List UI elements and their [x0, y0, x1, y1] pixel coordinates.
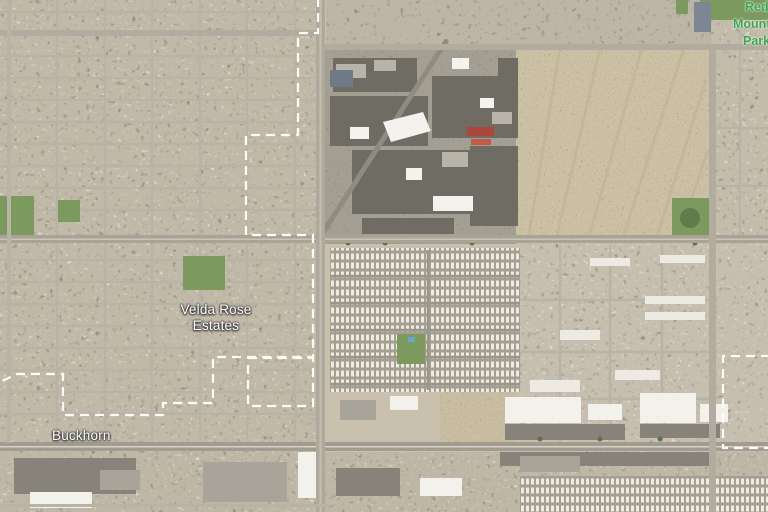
pond-green: [680, 208, 700, 228]
road-center-line-south: [0, 446, 768, 448]
park-label-line3: Park: [743, 34, 768, 49]
swimming-pool: [408, 337, 415, 342]
tree: [598, 437, 603, 442]
mobile-home-park-south: [520, 476, 768, 512]
satellite-imagery: [0, 0, 768, 512]
tree: [538, 437, 543, 442]
road-vertical-east: [709, 44, 716, 512]
major-road-north-west: [0, 30, 320, 36]
blue-roof-structures: [694, 2, 711, 32]
park-label-line2: Mountain: [733, 17, 768, 32]
red-containers-small: [471, 139, 491, 145]
major-road-north-east: [318, 44, 768, 50]
road-center-line-middle: [0, 239, 768, 241]
satellite-map[interactable]: Velda Rose Estates Buckhorn Red Mountain…: [0, 0, 768, 512]
texture-desert-patch: [440, 392, 516, 444]
map-label-buckhorn[interactable]: Buckhorn: [52, 428, 111, 444]
velda-rose-line1: Velda Rose: [156, 302, 276, 318]
map-label-velda-rose-estates[interactable]: Velda Rose Estates: [156, 302, 276, 334]
mobile-home-park-central: [330, 248, 520, 392]
tree: [658, 437, 663, 442]
velda-rose-line2: Estates: [156, 318, 276, 334]
minor-road-bottom: [0, 504, 330, 507]
texture-dark-north: [326, 0, 711, 44]
park-label-line1: Red: [745, 0, 768, 15]
red-containers: [467, 127, 494, 136]
texture-light-west: [0, 0, 320, 452]
blue-roof-rows: [330, 70, 353, 87]
road-center-line-vertical: [320, 0, 322, 512]
